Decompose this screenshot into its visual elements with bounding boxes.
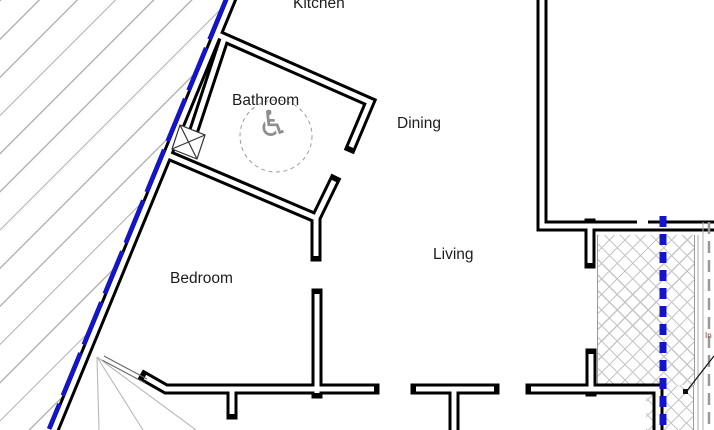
wall-cavity-lines	[54, 0, 714, 430]
room-label-kitchen: Kitchen	[293, 0, 345, 13]
site-boundary-line-left	[49, 0, 227, 429]
wall-outlines	[54, 0, 714, 430]
wheelchair-icon: ♿	[257, 105, 289, 145]
wall-joint-notch	[637, 219, 648, 224]
right-unit-wall	[542, 0, 714, 226]
room-label-dining: Dining	[397, 115, 441, 133]
floorplan-linework	[0, 0, 714, 430]
leader-note-fragment: In	[705, 331, 712, 340]
floor-plan-canvas: Kitchen Bathroom Dining Living Bedroom ♿…	[0, 0, 714, 430]
room-label-bedroom: Bedroom	[170, 270, 233, 288]
room-label-living: Living	[433, 246, 474, 264]
